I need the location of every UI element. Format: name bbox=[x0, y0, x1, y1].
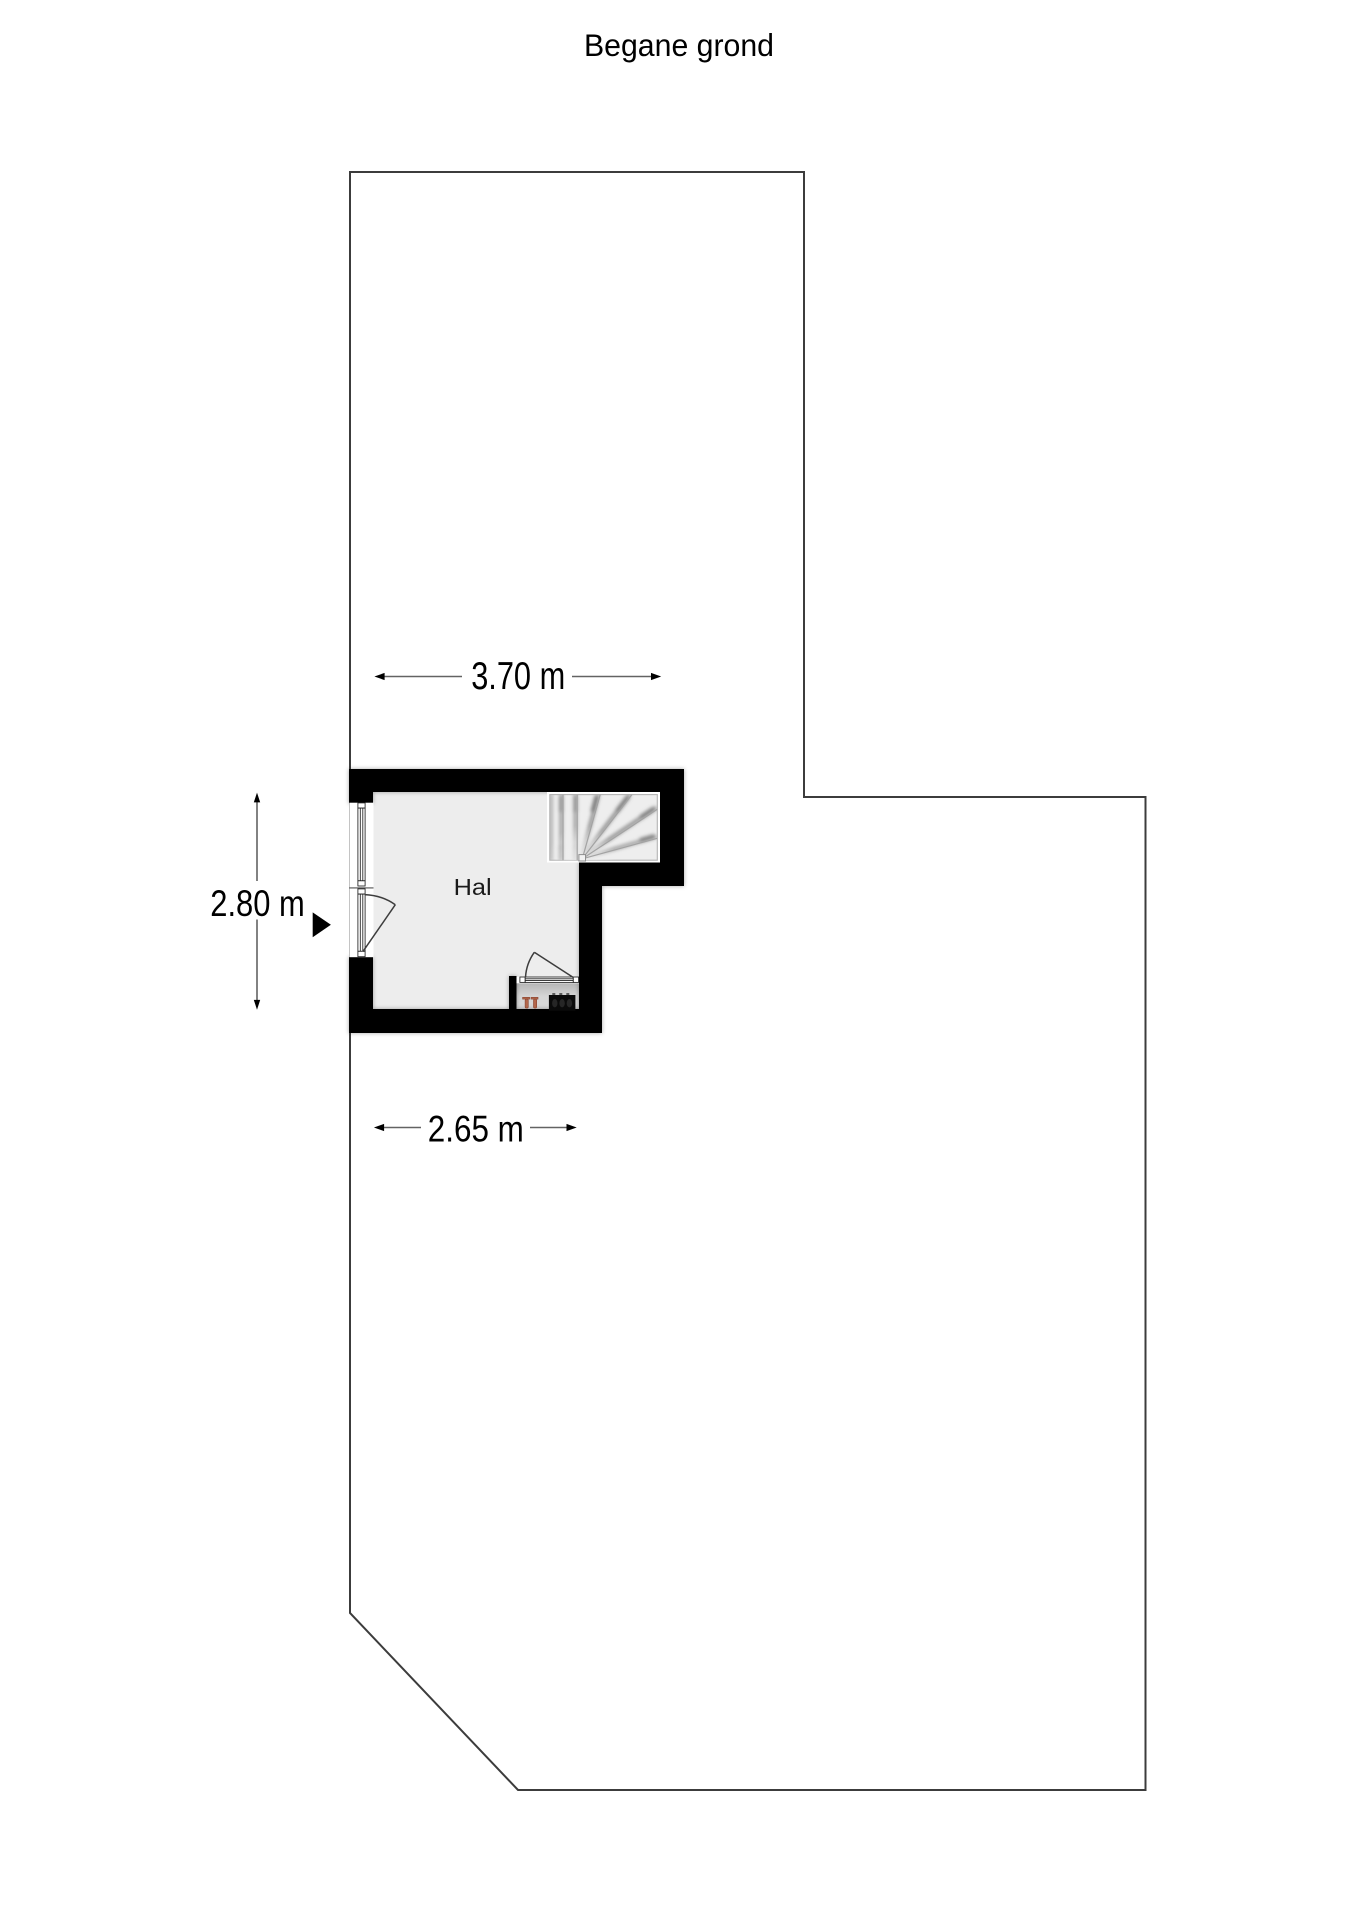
svg-text:Begane grond: Begane grond bbox=[584, 27, 774, 63]
svg-text:Hal: Hal bbox=[454, 874, 492, 900]
svg-text:2.65 m: 2.65 m bbox=[428, 1108, 524, 1150]
svg-text:2.80 m: 2.80 m bbox=[210, 882, 305, 924]
svg-text:3.70 m: 3.70 m bbox=[471, 655, 565, 698]
